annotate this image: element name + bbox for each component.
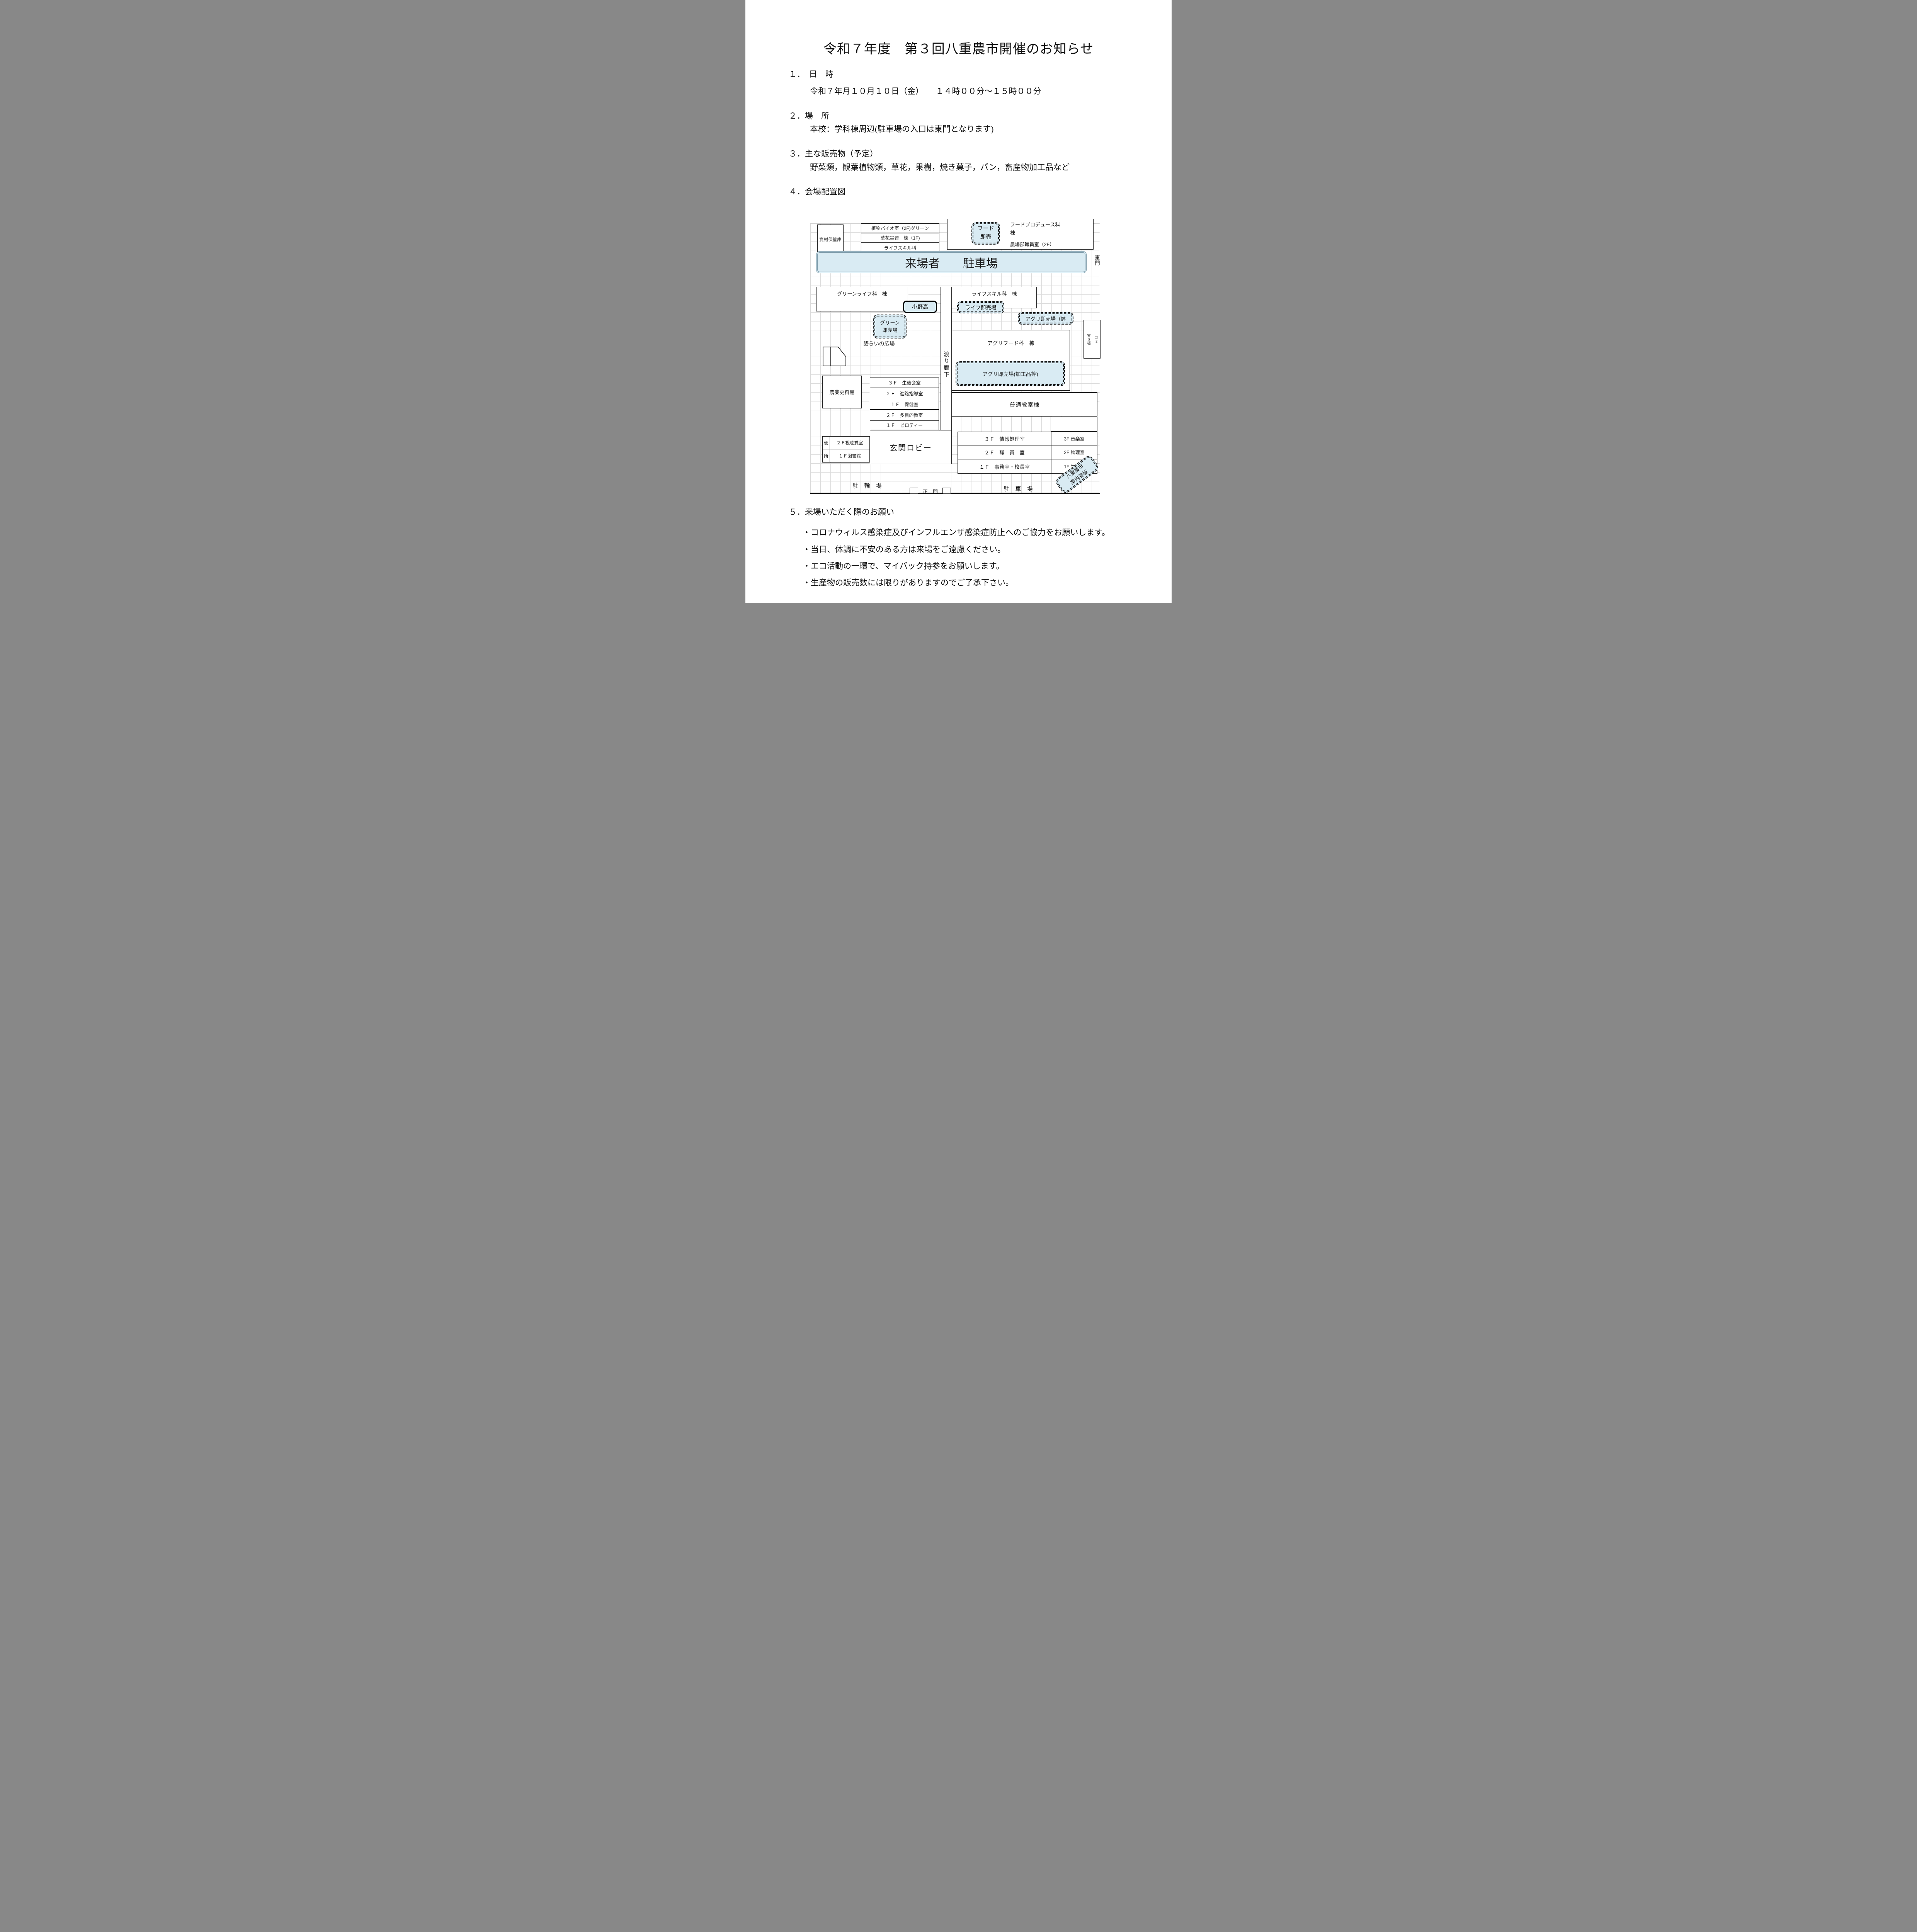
room-pilotis: １Ｆ ピロティー bbox=[870, 421, 939, 430]
label-bicycle-parking: 駐 輪 場 bbox=[834, 481, 900, 490]
section5-bullet-2: ・当日、体調に不安のある方は来場をご遠慮ください。 bbox=[803, 543, 1005, 555]
label-toilet-top: 便 bbox=[823, 437, 830, 449]
stall-life: ライフ即売場 bbox=[957, 301, 1004, 313]
gate-pillar-right bbox=[942, 488, 951, 494]
building-mid-rows: ３Ｆ 生徒会室 ２Ｆ 進路指導室 １Ｆ 保健室 ２Ｆ 多目的教室 １Ｆ ピロティ… bbox=[870, 378, 939, 430]
room-av: ２Ｆ視聴覚室 bbox=[830, 437, 869, 449]
room-student-council: ３Ｆ 生徒会室 bbox=[870, 378, 939, 388]
section3-body: 野菜類，観葉植物類，草花，果樹，焼き菓子，パン，畜産物加工品など bbox=[810, 161, 1070, 173]
section3-heading: ３．主な販売物（予定） bbox=[789, 148, 878, 159]
stall-food: フード 即売 bbox=[971, 222, 1000, 245]
building-museum: 農業史料館 bbox=[822, 376, 862, 408]
section1-body: 令和７年月１０月１０日（金） １４時００分～１５時００分 bbox=[810, 85, 1041, 97]
building-materials-storage: 資材保管庫 bbox=[817, 224, 844, 255]
room-plant-bio: 植物バイオ室（2F)グリーン bbox=[861, 224, 939, 233]
room-flower-practice: 草花実習 棟（1F) bbox=[861, 233, 939, 243]
room-info-processing: ３Ｆ 情報処理室 bbox=[958, 432, 1051, 446]
label-food-produce-bldg: フードプロデュース科 棟 bbox=[1010, 221, 1060, 237]
room-office-principal: １Ｆ 事務室・校長室 bbox=[958, 459, 1051, 473]
section2-heading: ２．場 所 bbox=[789, 110, 829, 121]
room-staff: ２Ｆ 職 員 室 bbox=[958, 446, 1051, 460]
entrance-lobby: 玄関ロビー bbox=[870, 430, 952, 464]
building-regular-classroom: 普通教室棟 bbox=[952, 392, 1097, 417]
section5-heading: ５．来場いただく際のお願い bbox=[789, 506, 894, 517]
stall-agri-processed: アグリ即売場(加工品等) bbox=[956, 361, 1065, 386]
building-food-produce: フードプロデュース科 棟 農場部職員室（2F） フード 即売 bbox=[947, 219, 1094, 250]
section5-bullet-4: ・生産物の販売数には限りがありますのでご了承下さい。 bbox=[803, 577, 1014, 588]
visitor-parking-area: 来場者 駐車場 bbox=[816, 251, 1087, 273]
garbage-area: ゴミ 置き場 bbox=[1084, 320, 1101, 359]
label-plaza: 語らいの広場 bbox=[854, 339, 904, 347]
section1-heading: １． 日 時 bbox=[789, 68, 833, 80]
label-farm-office: 農場部職員室（2F） bbox=[1010, 240, 1055, 248]
room-career-guidance: ２Ｆ 進路指導室 bbox=[870, 388, 939, 399]
room-music: 3F 音楽室 bbox=[1051, 432, 1097, 446]
venue-map: 資材保管庫 植物バイオ室（2F)グリーン 草花実習 棟（1F) ライフスキル科 … bbox=[810, 223, 1100, 494]
room-health: １Ｆ 保健室 bbox=[870, 399, 939, 410]
section2-body: 本校：学科棟周辺(駐車場の入口は東門となります) bbox=[810, 123, 993, 134]
section4-heading: ４．会場配置図 bbox=[789, 185, 845, 197]
room-multipurpose: ２Ｆ 多目的教室 bbox=[870, 410, 939, 421]
section5-bullet-1: ・コロナウィルス感染症及びインフルエンザ感染症防止へのご協力をお願いします。 bbox=[803, 526, 1110, 538]
label-east-gate: 東門 bbox=[1093, 255, 1101, 273]
building-lifeskill-dept: 植物バイオ室（2F)グリーン 草花実習 棟（1F) ライフスキル科 bbox=[861, 223, 939, 253]
building-small-annex bbox=[1051, 417, 1097, 432]
notice-document: 令和７年度 第３回八重農市開催のお知らせ １． 日 時 令和７年月１０月１０日（… bbox=[745, 0, 1172, 603]
building-greenlife: グリーンライフ科 棟 bbox=[816, 287, 908, 311]
label-main-gate: 正 門 bbox=[918, 488, 942, 495]
label-corridor: 渡り廊下 bbox=[941, 338, 951, 392]
label-parking: 駐 車 場 bbox=[985, 485, 1051, 493]
stall-agri-pots: アグリ即売場（鉢 bbox=[1018, 312, 1073, 325]
section5-bullet-3: ・エコ活動の一環で、マイバック持参をお願いします。 bbox=[803, 560, 1004, 571]
building-toilet-library: 便 ２Ｆ視聴覚室 所 １Ｆ図書館 bbox=[822, 436, 870, 463]
small-pentagon-building bbox=[823, 347, 846, 366]
label-toilet-bottom: 所 bbox=[823, 449, 830, 462]
gate-pillar-left bbox=[910, 488, 918, 494]
room-library: １Ｆ図書館 bbox=[830, 449, 869, 462]
booth-onodaka: 小野高 bbox=[903, 301, 937, 313]
stall-green: グリーン 即売場 bbox=[873, 315, 907, 338]
page-title: 令和７年度 第３回八重農市開催のお知らせ bbox=[745, 38, 1172, 57]
